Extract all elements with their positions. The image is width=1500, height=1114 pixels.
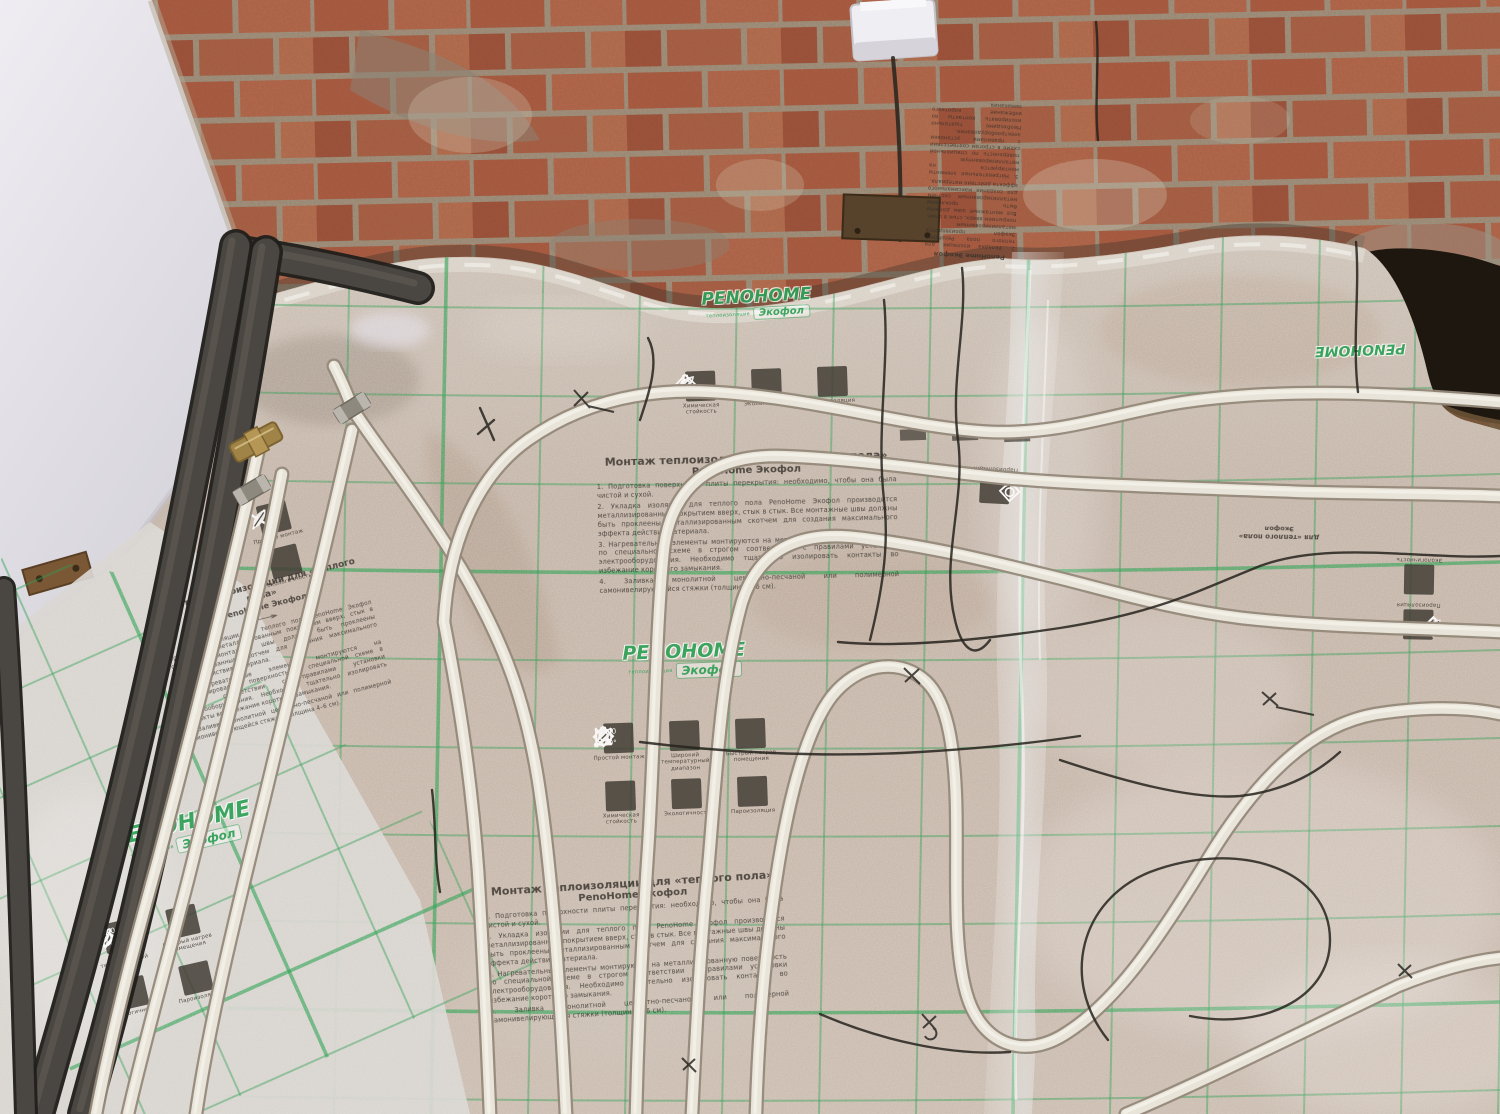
- feature-icon-caption: Химическая стойкость: [673, 402, 729, 417]
- vapor-barrier-icon: [979, 473, 1011, 505]
- vapor-barrier-icon: [737, 776, 768, 807]
- feature-eco-leaf-icon-cell: Экологичность: [738, 368, 796, 415]
- penohome-logo: PENOHOME теплоизоляция Экофол: [696, 284, 818, 322]
- instruction-text-block-upside-down: PenoHome Экофол 2. Укладка изоляции для …: [924, 95, 1022, 262]
- brand-logo-text: PENOHOME: [1312, 340, 1408, 359]
- instruction-step: 2. Укладка изоляции для теплого пола Pen…: [597, 495, 898, 538]
- feature-vapor-barrier-icon-cell: Пароизоляция: [804, 365, 862, 412]
- temperature-range-icon: +40°-40°: [669, 720, 700, 751]
- feature-icons-grid: Простой монтаж+40°-40°Широкий температур…: [590, 717, 781, 826]
- feature-icon-caption: Простой монтаж: [591, 754, 647, 762]
- insulation-print-layer: PENOHOME теплоизоляция Экофол Химическая…: [0, 0, 1500, 1114]
- feature-icon-caption: Экологичность: [1391, 555, 1447, 562]
- penohome-logo: PENOHOME теплоизоляция Экофол: [616, 638, 752, 680]
- feature-eco-leaf-icon-cell: Экологичность: [1391, 555, 1448, 594]
- feature-eco-leaf-icon-cell: Экологичность: [101, 972, 164, 1022]
- instruction-step: 2. Укладка изоляции для теплого пола Pen…: [925, 176, 1019, 251]
- instruction-step: 3. Нагревательные элементы монтируются н…: [598, 533, 899, 576]
- feature-icon-caption: Экологичность: [739, 400, 795, 408]
- instruction-title-upside-down: для «теплого пола» Экофол: [1204, 520, 1354, 542]
- feature-icon-upside-down: Пароизоляция: [966, 464, 1024, 505]
- fast-heating-icon: [165, 903, 201, 939]
- feature-icon-caption: Пароизоляция: [725, 807, 781, 815]
- feature-icon-caption: Пароизоляция: [1391, 601, 1447, 608]
- vapor-barrier-icon: [178, 960, 214, 996]
- eco-leaf-icon: [114, 975, 150, 1011]
- penohome-logo: PENOHOME теплоизоляция Экофол: [100, 794, 265, 869]
- feature-icon-caption: Пароизоляция: [805, 397, 861, 405]
- feature-icons-grid: +40°-40°Широкий температурный диапазонБы…: [88, 901, 229, 1022]
- instruction-text-block: Монтаж теплоизоляции для «теплого пола» …: [482, 868, 790, 1028]
- feature-fast-heating-icon-cell: Быстрый нагрев помещения: [722, 717, 780, 770]
- instruction-text-block: Монтаж теплоизоляции для «теплого пола» …: [156, 555, 395, 747]
- instruction-text-block: Монтаж теплоизоляции для «теплого пола» …: [596, 448, 900, 598]
- instruction-step: 3. Нагревательные элементы монтируются н…: [928, 97, 1022, 179]
- feature-icon-caption: Экологичность: [659, 810, 715, 818]
- brand-subbrand: Экофол: [676, 662, 741, 678]
- instruction-subtitle: PenoHome Экофол: [924, 249, 1014, 262]
- feature-flask-icon-cell: Химическая стойкость: [592, 780, 650, 827]
- eco-leaf-icon: [1404, 564, 1435, 595]
- feature-icons-upside-down: ПароизоляцияЭкологичность: [1390, 555, 1447, 640]
- feature-vapor-barrier-icon-cell: Пароизоляция: [165, 957, 228, 1007]
- fast-heating-icon: [735, 718, 766, 749]
- feature-icons-row-top: Химическая стойкостьЭкологичностьПароизо…: [672, 365, 861, 416]
- feature-icon-caption: Пароизоляция: [968, 464, 1024, 473]
- feature-icon-caption: Быстрый нагрев помещения: [723, 749, 779, 764]
- feature-vapor-barrier-icon-cell: Пароизоляция: [724, 775, 782, 822]
- eco-leaf-icon: [751, 368, 782, 399]
- underfloor-heating-photo: PENOHOME теплоизоляция Экофол Химическая…: [0, 0, 1500, 1114]
- vapor-barrier-icon: [817, 366, 848, 397]
- brand-tagline: теплоизоляция: [628, 668, 672, 676]
- feature-icon-caption: Широкий температурный диапазон: [657, 752, 714, 773]
- flask-icon: [605, 780, 636, 811]
- feature-temperature-range-icon-cell: +40°-40°Широкий температурный диапазон: [656, 720, 714, 773]
- penohome-logo-fragment: PENOHOME: [1312, 340, 1408, 359]
- eco-leaf-icon: [671, 778, 702, 809]
- feature-vapor-barrier-icon-cell: Пароизоляция: [966, 464, 1024, 505]
- feature-eco-leaf-icon-cell: Экологичность: [658, 778, 716, 825]
- feature-icon-caption: Широкий температурный диапазон: [95, 947, 154, 978]
- brand-tagline: теплоизоляция: [706, 311, 751, 319]
- brand-subbrand: Экофол: [754, 305, 810, 319]
- feature-icon-caption: Химическая стойкость: [593, 812, 649, 827]
- feature-fast-heating-icon-cell: Быстрый нагрев помещения: [152, 901, 218, 963]
